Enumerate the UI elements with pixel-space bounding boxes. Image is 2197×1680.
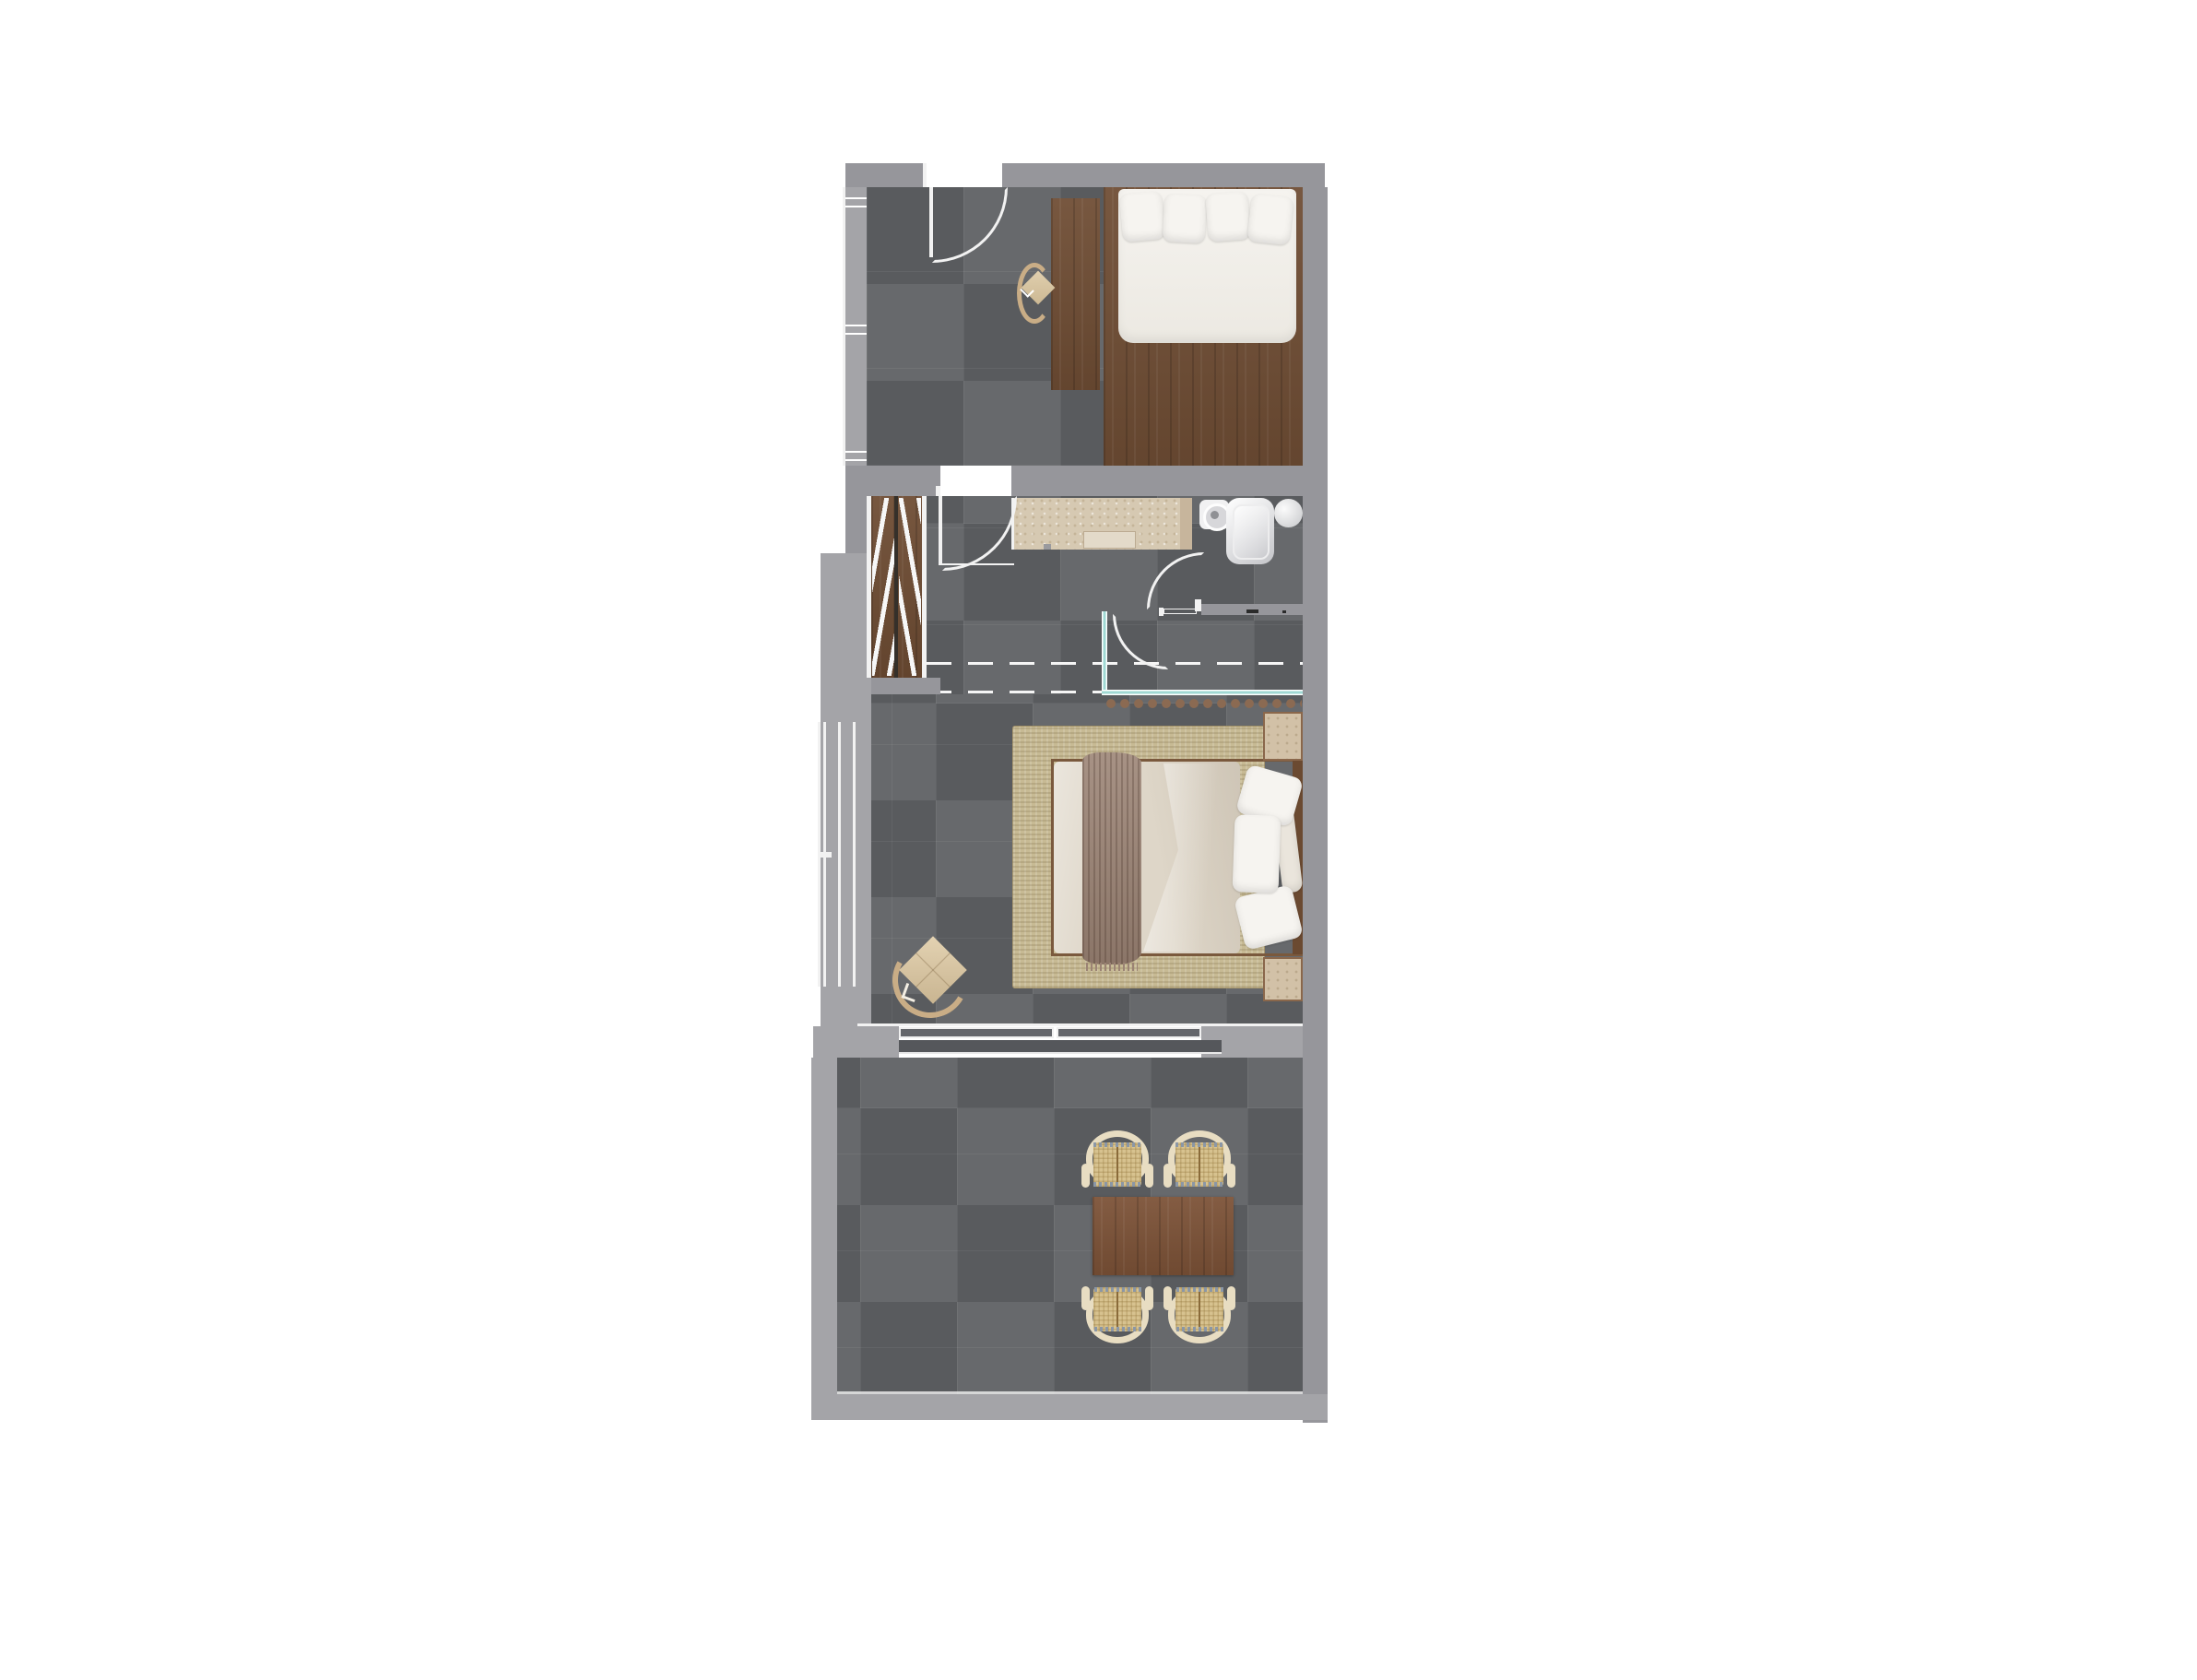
window-glazing-line bbox=[853, 722, 856, 987]
wall-closet-stub bbox=[871, 678, 940, 694]
dashed-line-lower bbox=[927, 691, 1102, 693]
dining-chair bbox=[1081, 1283, 1154, 1343]
sliding-door-panel bbox=[899, 1027, 1054, 1038]
dining-table bbox=[1093, 1197, 1234, 1275]
wall-top-left bbox=[845, 163, 927, 187]
chair-rattan-seat bbox=[1175, 1287, 1223, 1331]
nightstand bbox=[1263, 957, 1303, 1001]
shower-tray-inner bbox=[1233, 504, 1270, 560]
counter-right-edge bbox=[1180, 498, 1192, 550]
wardrobe-frame bbox=[867, 496, 871, 678]
wall-sliding-left bbox=[813, 1026, 899, 1058]
wall-mid-band-right bbox=[1011, 466, 1328, 496]
chair-fringe bbox=[1093, 1182, 1141, 1187]
sliding-door-threshold bbox=[899, 1040, 1222, 1054]
window-mullion-tick bbox=[821, 852, 832, 858]
counter-basin-inset bbox=[1083, 531, 1136, 549]
chair-rattan-seat bbox=[1093, 1142, 1141, 1187]
counter-faucet-tab bbox=[1044, 544, 1051, 550]
wall-top-right bbox=[1002, 163, 1325, 187]
door-frame bbox=[923, 163, 927, 187]
chair-fringe bbox=[1093, 1327, 1141, 1331]
chair-fringe bbox=[1093, 1287, 1141, 1292]
dashed-line-upper bbox=[927, 662, 1303, 665]
chair-seat-divider bbox=[1199, 1142, 1200, 1187]
window-glazing-line bbox=[838, 722, 841, 987]
window-mullion-tick bbox=[845, 325, 867, 335]
chair-seat-divider bbox=[1116, 1287, 1118, 1331]
wall-mid-band-left bbox=[845, 466, 940, 496]
desk-chair bbox=[1017, 263, 1052, 316]
dining-chair bbox=[1081, 1130, 1154, 1191]
wardrobe-frame bbox=[922, 496, 927, 678]
sliding-door-track-line bbox=[857, 1023, 1303, 1026]
wall-dining-bottom bbox=[811, 1394, 1328, 1420]
bed-throw-blanket bbox=[1082, 752, 1141, 964]
pillow bbox=[1163, 194, 1208, 243]
pillow bbox=[1233, 814, 1282, 893]
throw-fringe bbox=[1086, 963, 1138, 971]
wardrobe-rail bbox=[894, 496, 898, 678]
wardrobe-hangers-left bbox=[872, 498, 894, 676]
floor-plan bbox=[0, 0, 2197, 1680]
chair-arm bbox=[1163, 1164, 1172, 1188]
armchair bbox=[892, 937, 966, 1011]
wall-closet-left-col bbox=[845, 496, 867, 553]
floor-edge-line-dining bbox=[837, 1391, 1303, 1394]
dining-chair bbox=[1163, 1283, 1236, 1343]
wall-window-stub-top bbox=[821, 694, 871, 722]
chair-arm bbox=[1081, 1286, 1090, 1310]
chair-arm bbox=[1227, 1286, 1235, 1310]
sink-drain bbox=[1211, 511, 1219, 519]
nightstand bbox=[1263, 712, 1303, 761]
chair-arm bbox=[1145, 1164, 1153, 1188]
pillow bbox=[1205, 191, 1251, 242]
glass-partition-vertical bbox=[1102, 611, 1107, 695]
door-leaf bbox=[1163, 609, 1197, 614]
dining-chair bbox=[1163, 1130, 1236, 1191]
chair-arm bbox=[1227, 1164, 1235, 1188]
desk bbox=[1051, 198, 1100, 390]
pillow bbox=[1246, 194, 1293, 246]
chair-arm bbox=[1145, 1286, 1153, 1310]
pillow bbox=[1119, 191, 1165, 243]
wall-glyph bbox=[1282, 610, 1286, 613]
wall-dining-left bbox=[811, 1058, 837, 1394]
shower-tray bbox=[1226, 498, 1274, 564]
chair-seat-divider bbox=[1199, 1287, 1200, 1331]
vanity-counter bbox=[1014, 498, 1192, 550]
sliding-door-panel bbox=[1057, 1027, 1201, 1038]
chair-fringe bbox=[1175, 1327, 1223, 1331]
chair-rattan-seat bbox=[1175, 1142, 1223, 1187]
glass-partition-horizontal bbox=[1102, 690, 1303, 695]
wardrobe bbox=[871, 496, 922, 678]
chair-fringe bbox=[1093, 1142, 1141, 1147]
wall-glyph bbox=[1246, 609, 1258, 613]
threshold-line bbox=[940, 563, 1014, 565]
chair-rattan-seat bbox=[1093, 1287, 1141, 1331]
wardrobe-hangers-right bbox=[899, 498, 921, 676]
wall-right bbox=[1303, 187, 1328, 1423]
round-stool bbox=[1274, 499, 1303, 527]
chair-seat-divider bbox=[1116, 1142, 1118, 1187]
window-mullion-tick bbox=[845, 451, 867, 461]
wall-window-stub-bottom bbox=[821, 987, 871, 1028]
chair-fringe bbox=[1175, 1287, 1223, 1292]
counter-edge-line bbox=[1011, 498, 1014, 550]
chair-fringe bbox=[1175, 1142, 1223, 1147]
chair-arm bbox=[1163, 1286, 1172, 1310]
chair-arm bbox=[1081, 1164, 1090, 1188]
chair-fringe bbox=[1175, 1182, 1223, 1187]
window-mullion-tick bbox=[845, 197, 867, 207]
door-frame bbox=[936, 486, 940, 496]
dot-screen-row bbox=[1106, 699, 1302, 709]
